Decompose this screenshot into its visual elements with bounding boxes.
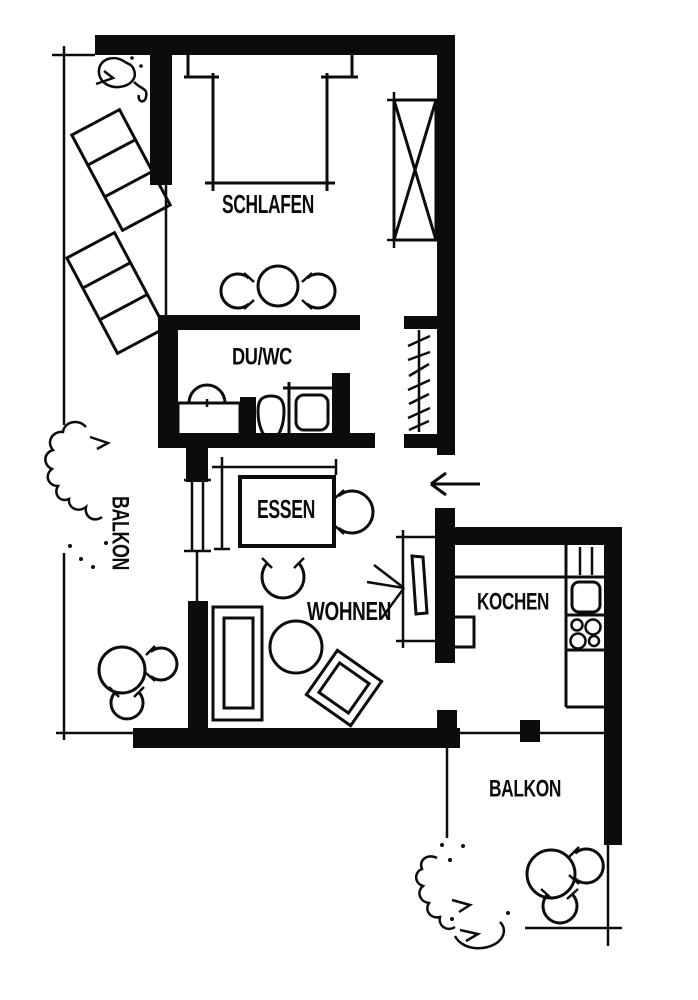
lounger-2	[67, 233, 165, 354]
wall-east-upper	[437, 55, 455, 455]
wall-balcony-divider	[150, 55, 172, 185]
bedroom-chair-right	[302, 273, 335, 309]
toilet	[258, 396, 284, 438]
dining-chair-south	[262, 558, 304, 598]
balcony-west-table	[99, 647, 145, 693]
balcony-south-table	[527, 850, 575, 898]
closet-rail-icon	[408, 330, 430, 432]
coffee-table	[270, 621, 322, 673]
shower	[283, 382, 335, 437]
kitchen-cabinet	[453, 617, 474, 647]
wall-balcony-door-pillar	[520, 720, 540, 742]
wall-basin-partition	[240, 397, 256, 448]
wall-north	[95, 35, 455, 55]
dining-chair-east	[333, 490, 373, 534]
label-balkon-west: BALKON	[107, 496, 134, 570]
wardrobe	[387, 92, 436, 248]
fridge-icon	[580, 547, 592, 575]
wall-south	[133, 728, 460, 748]
wall-duwc-west	[158, 330, 178, 448]
wall-west-stub	[186, 448, 208, 482]
kitchen-sink-icon	[572, 582, 600, 612]
label-schlafen: SCHLAFEN	[222, 189, 314, 219]
label-du-wc: DU/WC	[232, 344, 292, 371]
label-kochen: KOCHEN	[477, 589, 549, 616]
balcony-west-chair-a	[146, 646, 177, 681]
balcony-door-window	[184, 480, 211, 601]
balcony-south-chair-b	[541, 889, 578, 923]
wall-east-lower	[604, 545, 622, 845]
label-wohnen: WOHNEN	[307, 596, 391, 626]
plant-south-icon	[416, 843, 510, 948]
bedroom-round-table	[258, 266, 298, 306]
sofa	[213, 607, 262, 720]
stove-icon	[571, 620, 601, 649]
wall-kitchen-north	[437, 527, 622, 545]
entrance-arrow-icon	[431, 473, 480, 495]
floorplan-page: SCHLAFEN DU/WC BALKON ESSEN WOHNEN KOCHE…	[0, 0, 698, 1000]
wall-west-lower	[188, 601, 208, 728]
wall-duwc-north	[158, 315, 360, 330]
plant-northwest-icon	[96, 56, 146, 101]
washbasin	[178, 385, 240, 437]
wall-closet-stub-north	[404, 316, 437, 329]
door-leaf-icon	[412, 556, 427, 614]
label-balkon-sued: BALKON	[489, 776, 561, 803]
walls	[95, 35, 622, 845]
floorplan-drawing: SCHLAFEN DU/WC BALKON ESSEN WOHNEN KOCHE…	[0, 0, 698, 1000]
wall-south-pillar	[437, 710, 457, 728]
living-room-door	[367, 530, 437, 648]
wall-duwc-east	[332, 373, 350, 448]
wall-closet-stub-south	[404, 434, 437, 448]
label-essen: ESSEN	[257, 494, 315, 524]
bedroom-chair-left	[221, 273, 254, 309]
plant-west-icon	[45, 422, 108, 569]
bed	[205, 73, 335, 191]
